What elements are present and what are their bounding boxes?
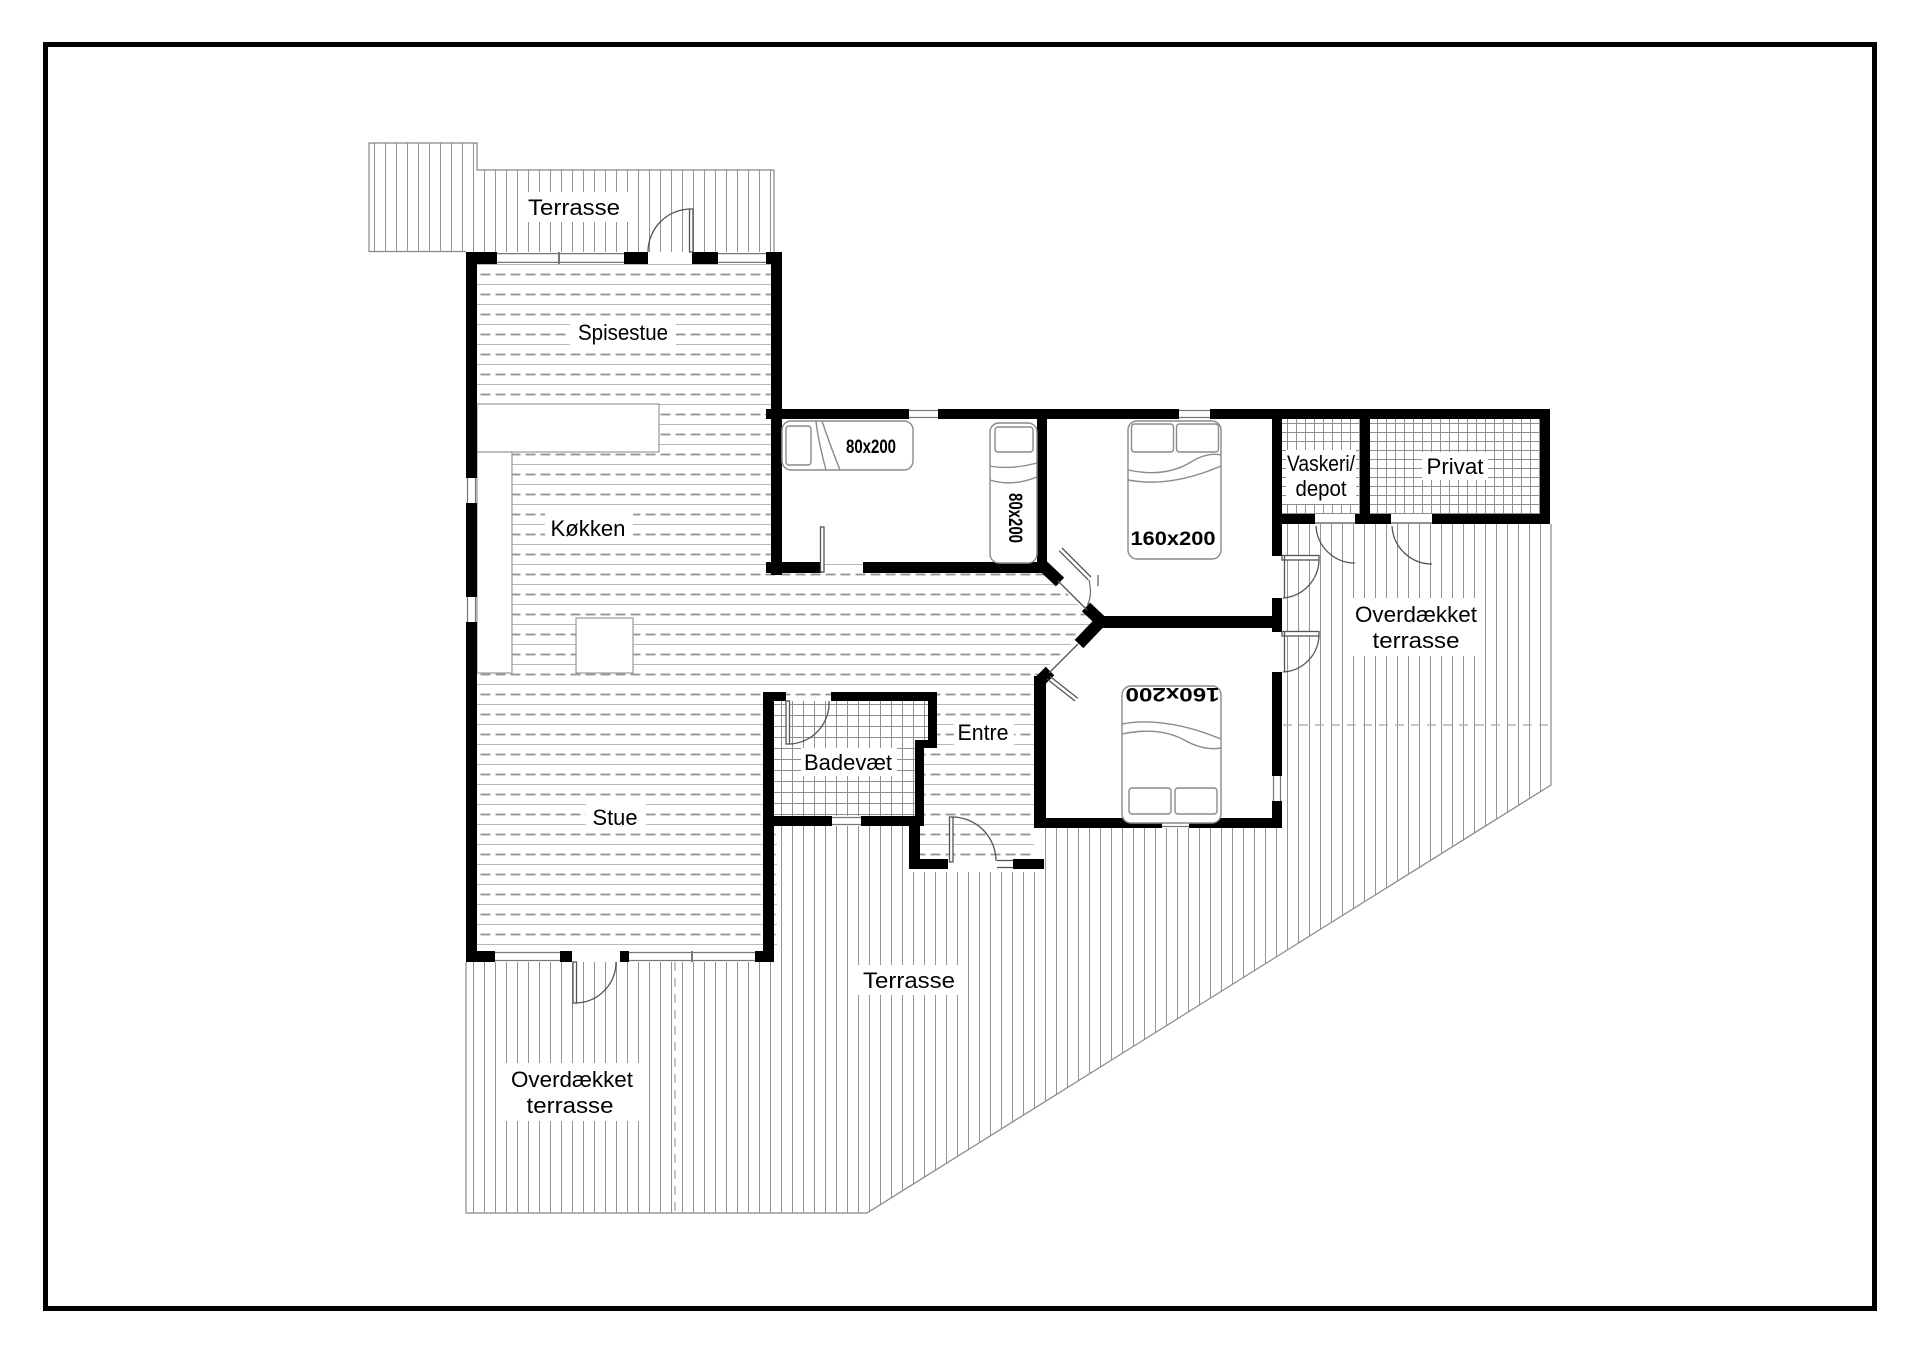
svg-text:Stue: Stue <box>593 805 638 830</box>
svg-text:Terrasse: Terrasse <box>528 195 620 220</box>
svg-text:Spisestue: Spisestue <box>578 320 668 345</box>
svg-text:Overdækket: Overdækket <box>511 1067 633 1092</box>
svg-text:terrasse: terrasse <box>527 1093 614 1118</box>
svg-text:terrasse: terrasse <box>1373 628 1460 653</box>
svg-text:Badevæt: Badevæt <box>804 750 892 775</box>
svg-text:Entre: Entre <box>958 720 1009 745</box>
svg-text:160x200: 160x200 <box>1126 683 1220 704</box>
svg-text:80x200: 80x200 <box>1004 493 1025 543</box>
svg-text:Privat: Privat <box>1427 454 1484 479</box>
svg-text:Terrasse: Terrasse <box>863 968 955 993</box>
svg-text:Køkken: Køkken <box>551 516 626 541</box>
svg-text:depot: depot <box>1296 476 1347 501</box>
svg-text:Overdækket: Overdækket <box>1355 602 1477 627</box>
svg-text:160x200: 160x200 <box>1131 529 1216 550</box>
svg-text:Vaskeri/: Vaskeri/ <box>1287 451 1356 476</box>
svg-text:80x200: 80x200 <box>846 437 896 458</box>
